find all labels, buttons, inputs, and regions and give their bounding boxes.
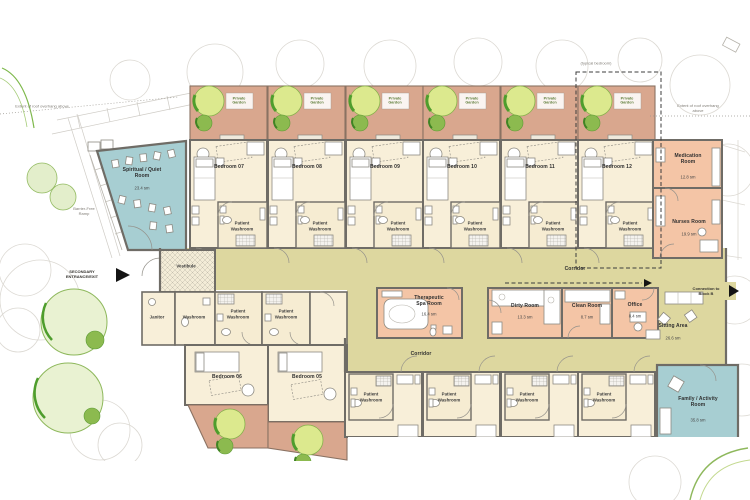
- therapeutic-spa-area: 16.4 sm: [422, 311, 437, 316]
- spiritual-quiet-room-label: Spiritual / Quiet Room: [123, 167, 162, 180]
- bedroom-07-label: Bedroom 07: [214, 164, 244, 170]
- family-activity-area: 35.8 sm: [691, 417, 706, 422]
- corridor-label: Corridor: [565, 266, 586, 272]
- patient-washroom-label: Patient Washroom: [231, 221, 254, 232]
- nurses-room-label: Nurses Room: [672, 219, 706, 225]
- corridor-label: Corridor: [411, 351, 432, 357]
- patient-washroom-label: Patient Washroom: [360, 392, 383, 403]
- connection-block-b-note: Connection to Block B: [693, 286, 720, 296]
- patient-washroom-label: Patient Washroom: [542, 221, 565, 232]
- barrier-free-ramp-note: Barrier-Free Ramp: [73, 206, 95, 216]
- nurses-room-area: 19.9 sm: [682, 231, 697, 236]
- bedroom-12-label: Bedroom 12: [602, 164, 632, 170]
- patient-washroom-label: Patient Washroom: [516, 392, 539, 403]
- patient-washroom-label: Patient Washroom: [593, 392, 616, 403]
- dirty-room-area: 13.3 sm: [518, 314, 533, 319]
- private-garden-label: Private Garden: [543, 97, 556, 106]
- sitting-area-label: Sitting Area: [658, 323, 687, 329]
- janitor-label: Janitor: [150, 314, 165, 320]
- clean-room-label: Clean Room: [572, 303, 602, 309]
- private-garden-label: Private Garden: [620, 97, 633, 106]
- spiritual-quiet-room-area: 23.4 sm: [135, 185, 150, 190]
- patient-washroom-label: Patient Washroom: [309, 221, 332, 232]
- bedroom-08-label: Bedroom 08: [292, 164, 322, 170]
- secondary-entrance-note: SECONDARY ENTRANCE/EXIT: [66, 269, 98, 279]
- roof-overhang-note-left: Extent of roof overhang above: [15, 104, 69, 109]
- roof-overhang-note-right: Extent of roof overhang above: [672, 103, 724, 113]
- private-garden-label: Private Garden: [232, 97, 245, 106]
- office-area: 8.4 sm: [629, 313, 642, 318]
- medication-room-area: 12.8 sm: [681, 174, 696, 179]
- typical-bedroom-note: (typical bedroom): [581, 61, 612, 66]
- patient-washroom-label: Patient Washroom: [227, 309, 250, 320]
- bedroom-05-label: Bedroom 05: [292, 374, 322, 380]
- bedroom-06-label: Bedroom 06: [212, 374, 242, 380]
- office-label: Office: [628, 302, 643, 308]
- vestibule-label: Vestibule: [176, 263, 195, 269]
- bedroom-09-label: Bedroom 09: [370, 164, 400, 170]
- family-activity-label: Family / Activity Room: [678, 396, 718, 409]
- dirty-room-label: Dirty Room: [511, 303, 539, 309]
- bedroom-11-label: Bedroom 11: [525, 164, 555, 170]
- washroom-label: Washroom: [183, 314, 206, 320]
- private-garden-label: Private Garden: [310, 97, 323, 106]
- bedroom-10-label: Bedroom 10: [447, 164, 477, 170]
- patient-washroom-label: Patient Washroom: [438, 392, 461, 403]
- private-garden-label: Private Garden: [465, 97, 478, 106]
- therapeutic-spa-label: Therapeutic Spa Room: [414, 295, 443, 308]
- patient-washroom-label: Patient Washroom: [387, 221, 410, 232]
- patient-washroom-label: Patient Washroom: [275, 309, 298, 320]
- floor-plan-page: Bedroom 07 Bedroom 08 Bedroom 09 Bedroom…: [0, 0, 750, 500]
- labels-layer: Bedroom 07 Bedroom 08 Bedroom 09 Bedroom…: [0, 0, 750, 500]
- sitting-area-area: 26.6 sm: [666, 335, 681, 340]
- patient-washroom-label: Patient Washroom: [619, 221, 642, 232]
- private-garden-label: Private Garden: [388, 97, 401, 106]
- clean-room-area: 8.7 sm: [581, 314, 594, 319]
- patient-washroom-label: Patient Washroom: [464, 221, 487, 232]
- medication-room-label: Medication Room: [674, 153, 701, 166]
